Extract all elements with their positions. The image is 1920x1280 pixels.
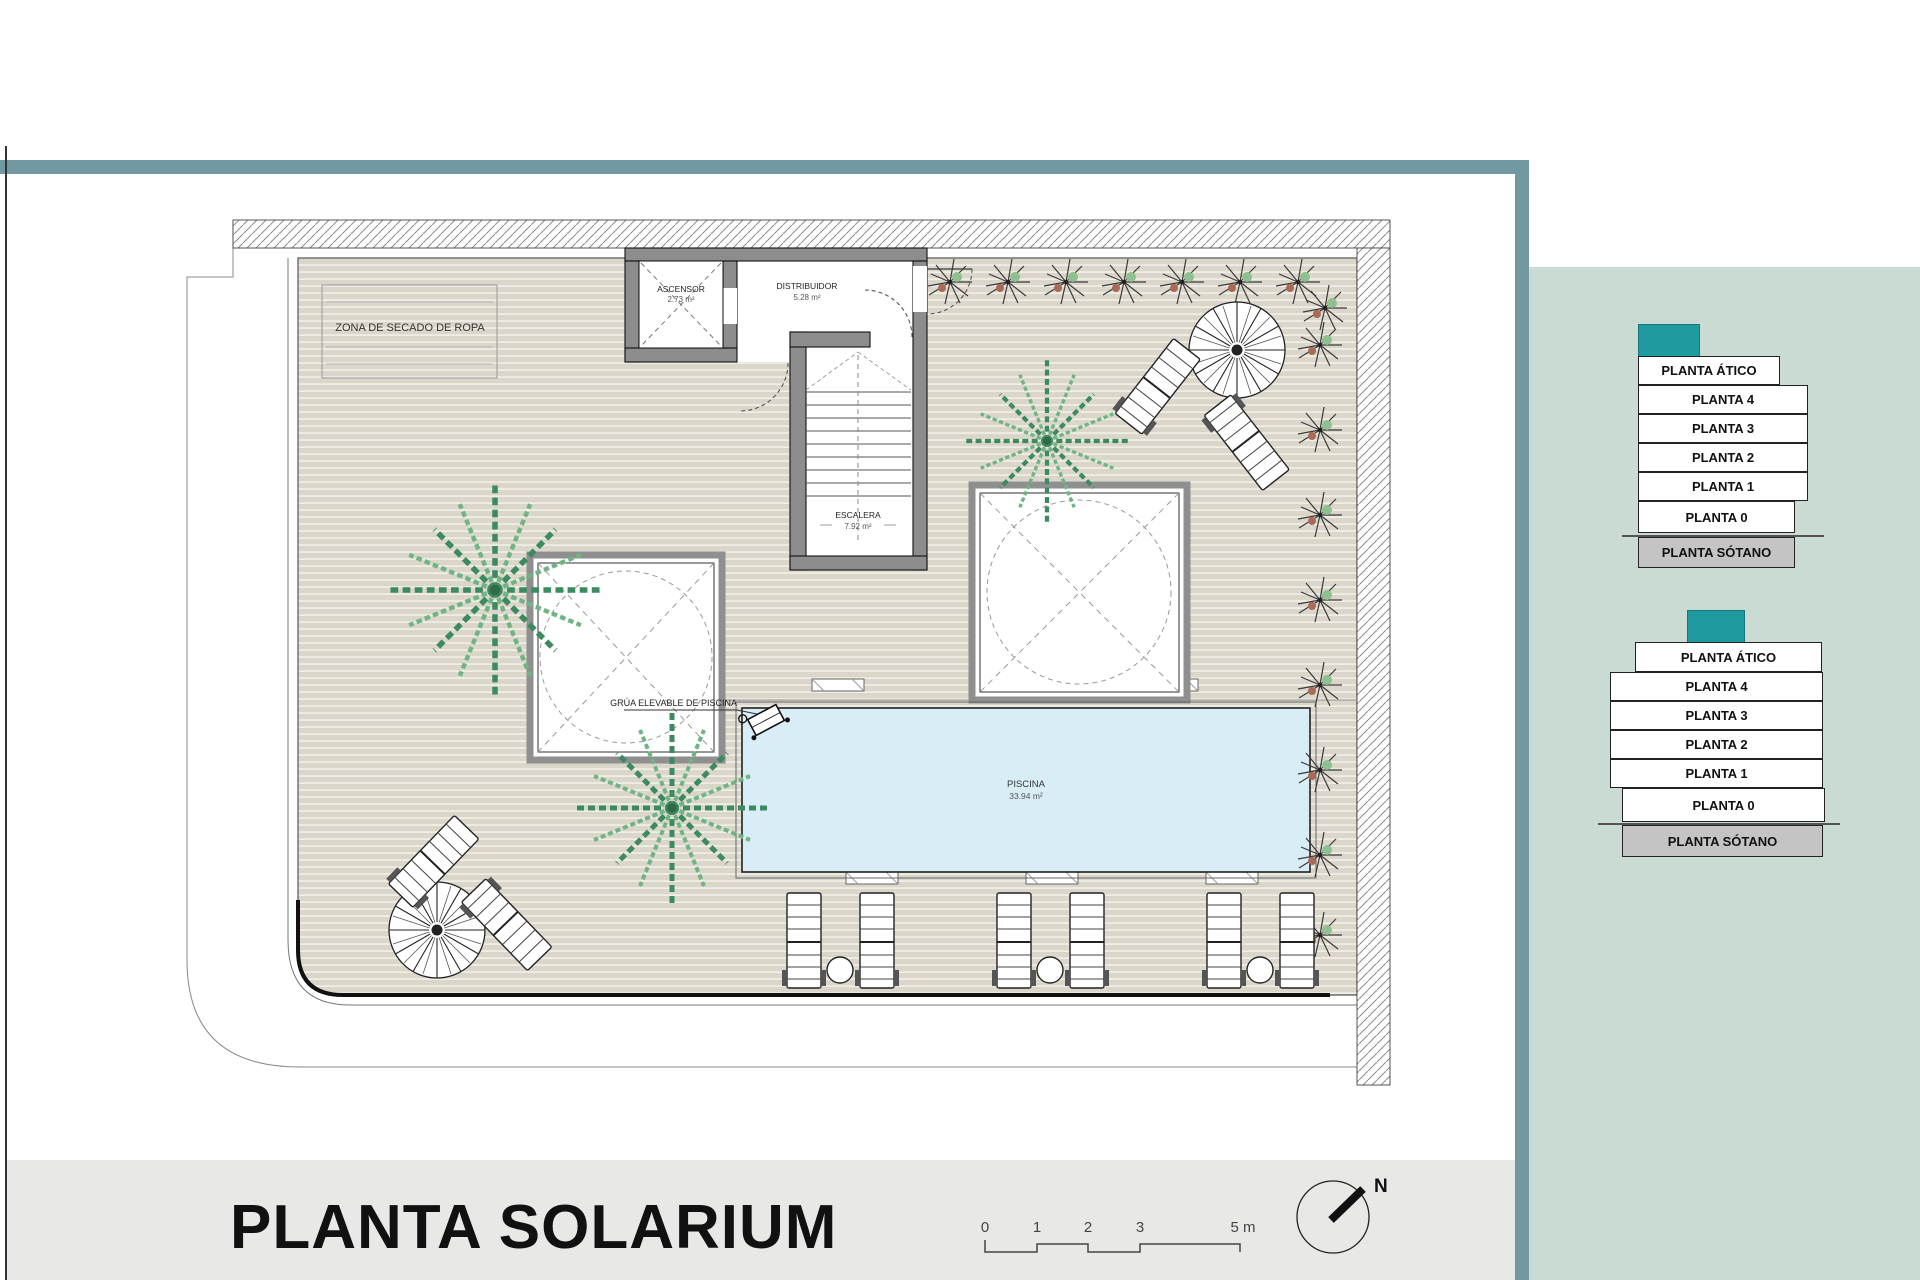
stack1-floor-sotano: PLANTA SÓTANO	[1638, 537, 1795, 568]
stack2-floor-1: PLANTA 1	[1610, 759, 1823, 788]
stack2-floor-atico: PLANTA ÁTICO	[1635, 642, 1822, 672]
stack1-floor-1: PLANTA 1	[1638, 472, 1808, 501]
svg-text:2: 2	[1084, 1219, 1092, 1236]
stack1-floor-4: PLANTA 4	[1638, 385, 1808, 414]
stack1-floor-atico: PLANTA ÁTICO	[1638, 356, 1780, 385]
elevator-door-opening	[723, 288, 737, 324]
distributor-label: DISTRIBUIDOR	[777, 281, 838, 291]
svg-text:3: 3	[1136, 1219, 1144, 1236]
pool-label: PISCINA	[1007, 779, 1046, 790]
stack2-floor-0: PLANTA 0	[1622, 788, 1825, 822]
pool-crane-label: GRÚA ELEVABLE DE PISCINA	[610, 698, 737, 708]
skylight-left	[530, 555, 722, 760]
scale-bar: 0 1 2 3 5 m	[981, 1219, 1256, 1252]
stack1-floor-2: PLANTA 2	[1638, 443, 1808, 472]
floor-plan-drawing: ZONA DE SECADO DE ROPA PISCINA 33.94 m² …	[0, 0, 1920, 1280]
pool-area: 33.94 m²	[1009, 791, 1043, 801]
svg-text:1: 1	[1033, 1219, 1041, 1236]
elevator-label: ASCENSOR	[657, 284, 705, 294]
elevator-area: 2.73 m²	[667, 295, 694, 304]
stair-label: ESCALERA	[835, 510, 881, 520]
stair-area: 7.92 m²	[844, 522, 871, 531]
core-door-opening	[913, 266, 927, 312]
skylight-right	[972, 485, 1187, 700]
pool: PISCINA 33.94 m²	[736, 702, 1316, 878]
stack2-floor-sotano: PLANTA SÓTANO	[1622, 825, 1823, 857]
stack1-floor-3: PLANTA 3	[1638, 414, 1808, 443]
stack2-floor-2: PLANTA 2	[1610, 730, 1823, 759]
attic-highlight-block	[1638, 324, 1700, 358]
elevator-room: ASCENSOR 2.73 m²	[639, 261, 723, 348]
distributor-area: 5.28 m²	[793, 293, 820, 302]
stack2-floor-3: PLANTA 3	[1610, 701, 1823, 730]
drying-zone-label: ZONA DE SECADO DE ROPA	[335, 322, 485, 334]
stack1-floor-0: PLANTA 0	[1638, 501, 1795, 533]
svg-text:0: 0	[981, 1219, 989, 1236]
north-label: N	[1374, 1176, 1388, 1197]
stack2-floor-4: PLANTA 4	[1610, 672, 1823, 701]
page-title: PLANTA SOLARIUM	[230, 1192, 837, 1263]
svg-text:5 m: 5 m	[1230, 1219, 1255, 1236]
north-arrow-icon: N	[1297, 1176, 1388, 1253]
attic-highlight-block-2	[1687, 610, 1745, 644]
